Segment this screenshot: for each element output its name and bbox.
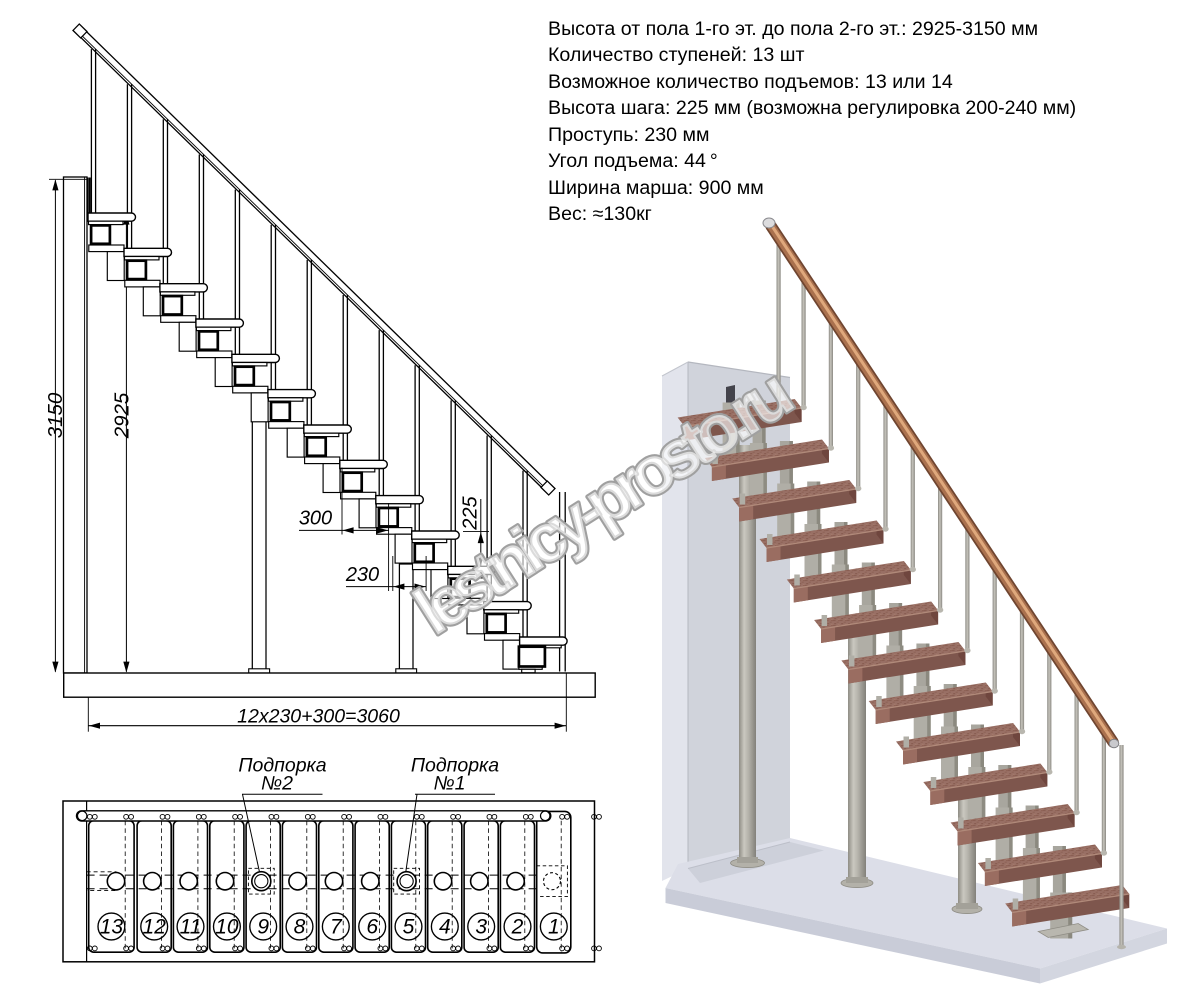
svg-text:lestnicy-prosto.ru: lestnicy-prosto.ru — [401, 356, 803, 650]
